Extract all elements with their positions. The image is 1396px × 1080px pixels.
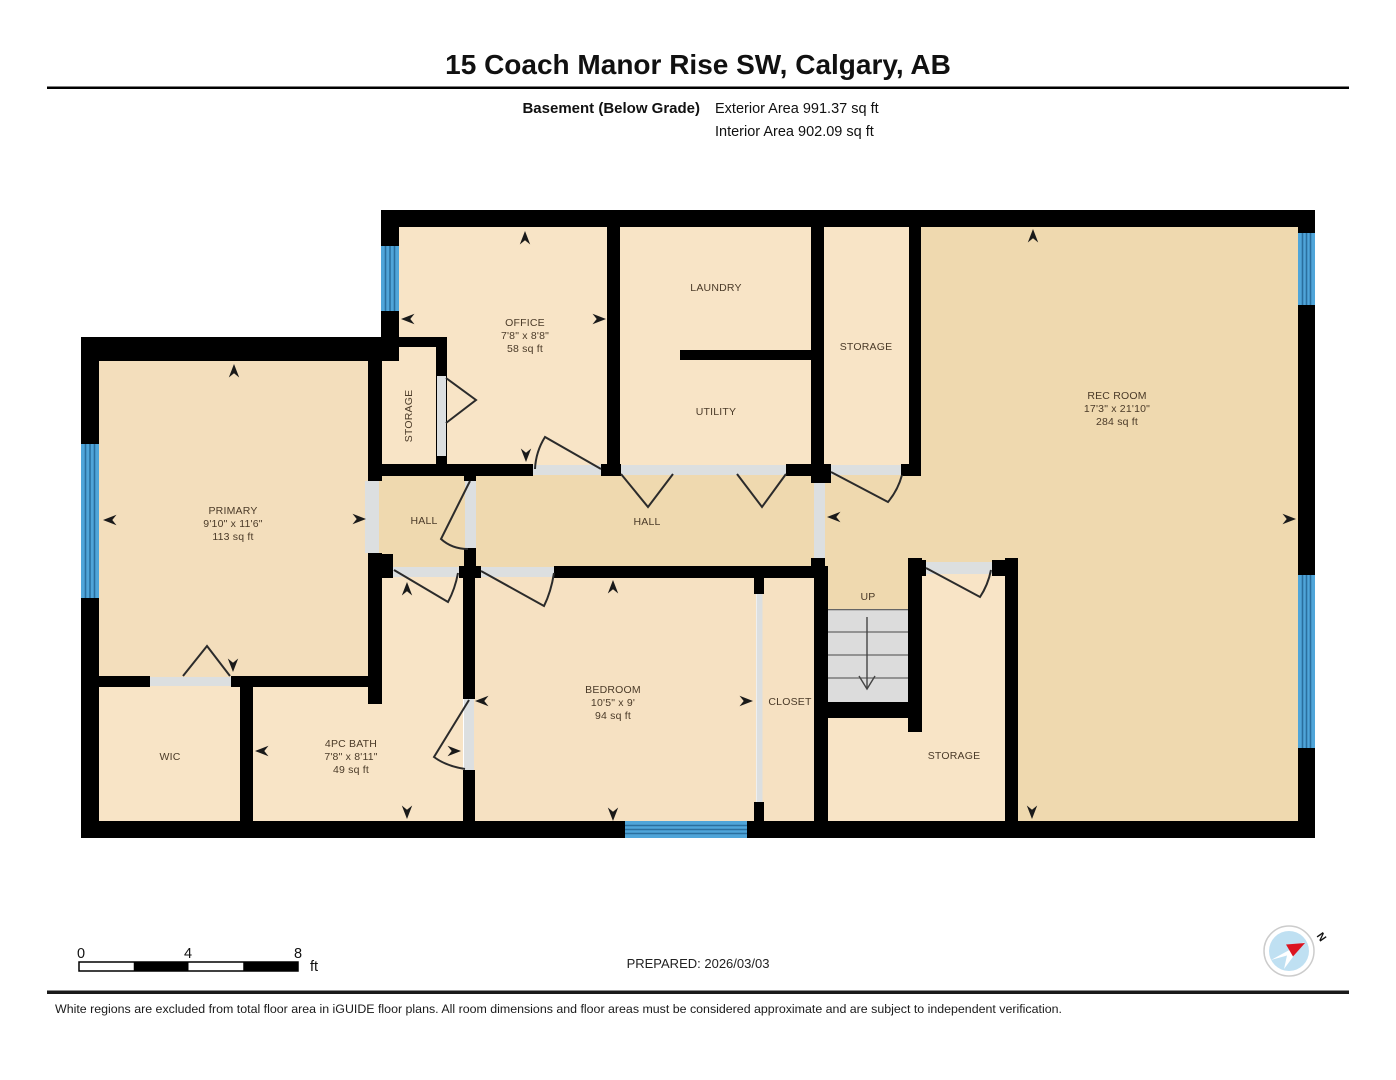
svg-text:Basement (Below Grade): Basement (Below Grade) bbox=[522, 100, 700, 117]
svg-text:4: 4 bbox=[184, 946, 192, 962]
svg-text:15 Coach Manor Rise SW, Calgar: 15 Coach Manor Rise SW, Calgary, AB bbox=[445, 49, 951, 80]
svg-text:STORAGE: STORAGE bbox=[928, 750, 981, 762]
svg-text:113 sq ft: 113 sq ft bbox=[212, 531, 253, 543]
svg-text:58 sq ft: 58 sq ft bbox=[507, 343, 543, 355]
svg-text:17'3" x 21'10": 17'3" x 21'10" bbox=[1084, 403, 1150, 415]
svg-text:HALL: HALL bbox=[410, 515, 437, 527]
svg-text:White regions are excluded fro: White regions are excluded from total fl… bbox=[55, 1002, 1062, 1016]
svg-text:WIC: WIC bbox=[159, 751, 180, 763]
svg-text:ft: ft bbox=[310, 959, 318, 975]
svg-text:REC ROOM: REC ROOM bbox=[1087, 390, 1146, 402]
svg-text:4PC BATH: 4PC BATH bbox=[325, 738, 377, 750]
svg-text:7'8" x 8'8": 7'8" x 8'8" bbox=[501, 330, 549, 342]
svg-text:HALL: HALL bbox=[633, 516, 660, 528]
svg-text:10'5" x 9': 10'5" x 9' bbox=[591, 697, 635, 709]
svg-text:BEDROOM: BEDROOM bbox=[585, 684, 641, 696]
svg-text:0: 0 bbox=[77, 946, 85, 962]
svg-text:9'10" x 11'6": 9'10" x 11'6" bbox=[203, 518, 262, 530]
svg-text:284 sq ft: 284 sq ft bbox=[1096, 416, 1138, 428]
svg-text:Interior Area 902.09 sq ft: Interior Area 902.09 sq ft bbox=[715, 124, 874, 140]
svg-text:PRIMARY: PRIMARY bbox=[208, 505, 257, 517]
svg-text:7'8" x 8'11": 7'8" x 8'11" bbox=[324, 751, 377, 763]
svg-text:OFFICE: OFFICE bbox=[505, 317, 545, 329]
svg-text:UTILITY: UTILITY bbox=[696, 406, 737, 418]
svg-text:8: 8 bbox=[294, 946, 302, 962]
svg-text:CLOSET: CLOSET bbox=[768, 696, 812, 708]
svg-text:LAUNDRY: LAUNDRY bbox=[690, 282, 741, 294]
svg-text:Exterior Area 991.37 sq ft: Exterior Area 991.37 sq ft bbox=[715, 101, 879, 117]
svg-text:STORAGE: STORAGE bbox=[840, 341, 893, 353]
svg-text:49 sq ft: 49 sq ft bbox=[333, 764, 369, 776]
svg-text:UP: UP bbox=[861, 591, 876, 603]
svg-text:PREPARED: 2026/03/03: PREPARED: 2026/03/03 bbox=[627, 956, 770, 971]
svg-text:STORAGE: STORAGE bbox=[403, 390, 415, 443]
svg-text:94 sq ft: 94 sq ft bbox=[595, 710, 631, 722]
